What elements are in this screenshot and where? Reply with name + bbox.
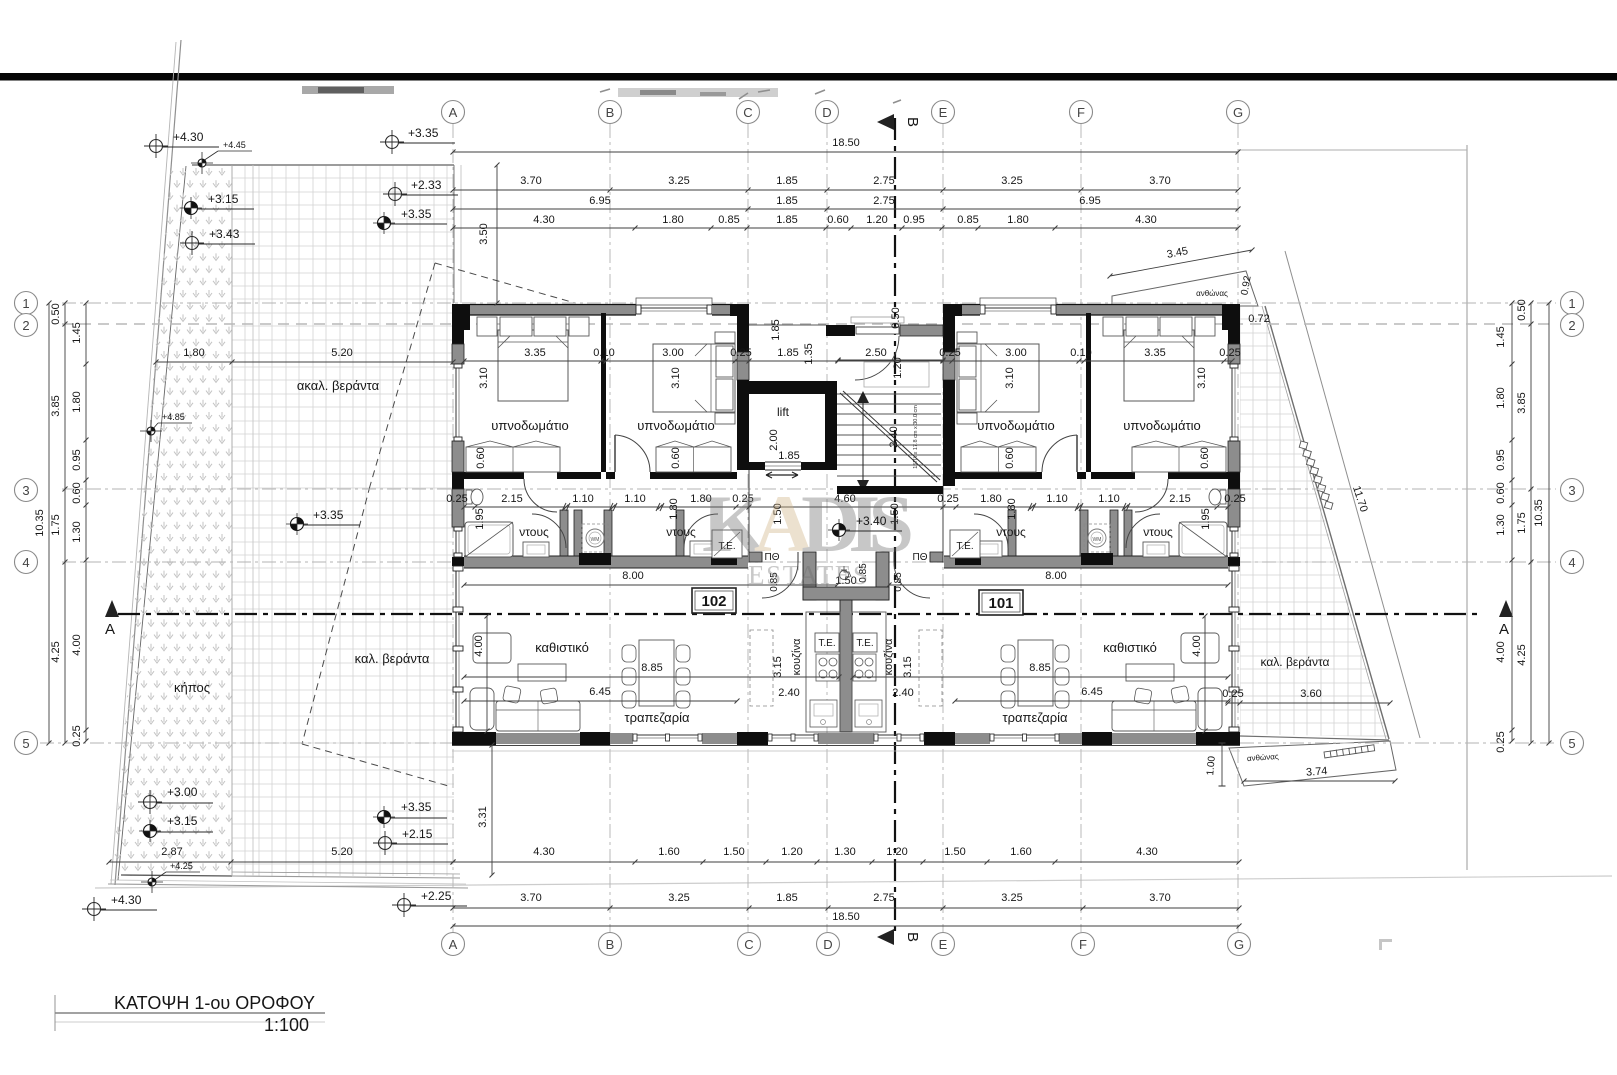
svg-text:B: B (904, 117, 921, 127)
svg-text:2.00: 2.00 (768, 429, 780, 450)
svg-text:0.60: 0.60 (475, 447, 487, 468)
svg-text:+3.35: +3.35 (408, 126, 439, 140)
svg-text:3.25: 3.25 (1001, 175, 1022, 187)
svg-text:Τ.Ε.: Τ.Ε. (818, 638, 835, 649)
svg-text:1: 1 (22, 296, 29, 311)
svg-text:υπνοδωμάτιο: υπνοδωμάτιο (637, 418, 714, 433)
svg-text:1.80: 1.80 (71, 391, 83, 412)
svg-text:0.85: 0.85 (957, 214, 978, 226)
svg-text:C: C (744, 937, 753, 952)
svg-text:0.25: 0.25 (446, 493, 467, 505)
svg-text:0.60: 0.60 (670, 447, 682, 468)
svg-text:0.72: 0.72 (1248, 313, 1269, 325)
svg-text:18.50: 18.50 (832, 911, 860, 923)
svg-text:καλ. βεράντα: καλ. βεράντα (1261, 655, 1330, 669)
svg-text:5.20: 5.20 (331, 347, 352, 359)
svg-text:υπνοδωμάτιο: υπνοδωμάτιο (1123, 418, 1200, 433)
svg-text:1.20: 1.20 (781, 846, 802, 858)
svg-text:A: A (449, 105, 458, 120)
svg-text:υπνοδωμάτιο: υπνοδωμάτιο (491, 418, 568, 433)
svg-text:0.25: 0.25 (1224, 493, 1245, 505)
svg-text:6.95: 6.95 (589, 195, 610, 207)
svg-text:τραπεζαρία: τραπεζαρία (625, 710, 690, 725)
svg-text:ντους: ντους (519, 525, 549, 539)
svg-text:1.30: 1.30 (71, 521, 83, 542)
svg-text:A: A (449, 937, 458, 952)
svg-text:ακαλ. βεράντα: ακαλ. βεράντα (297, 378, 380, 393)
svg-text:0.25: 0.25 (1219, 347, 1240, 359)
svg-text:3: 3 (22, 483, 29, 498)
svg-text:1.80: 1.80 (668, 498, 680, 519)
svg-text:2.75: 2.75 (873, 175, 894, 187)
svg-text:1.45: 1.45 (71, 322, 83, 343)
svg-text:1.50: 1.50 (944, 846, 965, 858)
svg-text:1.85: 1.85 (778, 450, 799, 462)
svg-text:D: D (823, 937, 832, 952)
svg-text:3.25: 3.25 (668, 892, 689, 904)
svg-text:0.25: 0.25 (71, 725, 83, 746)
svg-text:1.75: 1.75 (50, 514, 62, 535)
svg-text:3.10: 3.10 (670, 367, 682, 388)
svg-text:ανθώνας: ανθώνας (1196, 289, 1228, 298)
svg-text:1.85: 1.85 (776, 175, 797, 187)
svg-text:101: 101 (988, 595, 1013, 612)
svg-text:1.20: 1.20 (892, 357, 904, 378)
svg-text:1.10: 1.10 (572, 493, 593, 505)
svg-text:4.00: 4.00 (1495, 641, 1507, 662)
svg-text:8.85: 8.85 (641, 662, 662, 674)
svg-text:1.75: 1.75 (1516, 512, 1528, 533)
svg-text:Τ.Ε.: Τ.Ε. (956, 541, 973, 552)
svg-text:3.70: 3.70 (1149, 175, 1170, 187)
svg-text:ΠΘ: ΠΘ (913, 552, 928, 563)
svg-text:3.00: 3.00 (1005, 347, 1026, 359)
svg-text:+3.00: +3.00 (167, 785, 198, 799)
svg-text:G: G (1233, 105, 1243, 120)
svg-text:υπνοδωμάτιο: υπνοδωμάτιο (977, 418, 1054, 433)
svg-text:B: B (904, 932, 921, 942)
svg-text:κήπος: κήπος (174, 680, 210, 695)
svg-text:3.35: 3.35 (524, 347, 545, 359)
svg-text:0.60: 0.60 (71, 482, 83, 503)
svg-text:1.80: 1.80 (1006, 498, 1018, 519)
svg-text:10.35: 10.35 (34, 509, 46, 537)
svg-text:3.85: 3.85 (50, 395, 62, 416)
svg-text:2.40: 2.40 (778, 687, 799, 699)
svg-text:+3.15: +3.15 (208, 192, 239, 206)
svg-text:1.10: 1.10 (1098, 493, 1119, 505)
svg-text:+3.35: +3.35 (313, 508, 344, 522)
svg-text:0.85: 0.85 (718, 214, 739, 226)
svg-text:B: B (606, 105, 615, 120)
svg-text:ESTATES: ESTATES (748, 560, 868, 590)
svg-text:3.70: 3.70 (520, 175, 541, 187)
svg-text:2: 2 (22, 318, 29, 333)
svg-text:WM: WM (1093, 537, 1102, 543)
svg-text:κουζίνα: κουζίνα (791, 638, 803, 675)
svg-text:3.10: 3.10 (478, 367, 490, 388)
svg-text:E: E (939, 105, 948, 120)
svg-text:0.25: 0.25 (730, 347, 751, 359)
svg-text:ΚΑΤΟΨΗ 1-ου ΟΡΟΦΟΥ: ΚΑΤΟΨΗ 1-ου ΟΡΟΦΟΥ (114, 993, 315, 1013)
svg-text:+4.25: +4.25 (170, 861, 193, 871)
svg-text:3: 3 (1568, 483, 1575, 498)
svg-text:lift: lift (777, 405, 790, 419)
svg-text:3.15: 3.15 (772, 656, 784, 677)
svg-text:0.60: 0.60 (827, 214, 848, 226)
svg-text:4.30: 4.30 (533, 214, 554, 226)
svg-text:+3.15: +3.15 (167, 814, 198, 828)
svg-text:4: 4 (22, 555, 29, 570)
svg-text:ντους: ντους (666, 525, 696, 539)
svg-text:+3.35: +3.35 (401, 800, 432, 814)
svg-text:1.35: 1.35 (803, 343, 815, 364)
svg-text:0.50: 0.50 (890, 307, 902, 328)
svg-text:+3.43: +3.43 (209, 227, 240, 241)
svg-text:3.25: 3.25 (1001, 892, 1022, 904)
svg-text:1.60: 1.60 (658, 846, 679, 858)
svg-text:+3.35: +3.35 (401, 207, 432, 221)
svg-text:8.00: 8.00 (1045, 570, 1066, 582)
svg-text:2.15: 2.15 (1169, 493, 1190, 505)
svg-text:+4.30: +4.30 (111, 893, 142, 907)
svg-text:1.60: 1.60 (1010, 846, 1031, 858)
svg-text:3.70: 3.70 (1149, 892, 1170, 904)
svg-text:τραπεζαρία: τραπεζαρία (1003, 710, 1068, 725)
svg-text:3.85: 3.85 (1516, 392, 1528, 413)
svg-text:F: F (1079, 937, 1087, 952)
svg-text:18.50: 18.50 (832, 137, 860, 149)
svg-text:5: 5 (22, 736, 29, 751)
svg-text:8.00: 8.00 (622, 570, 643, 582)
svg-text:+4.85: +4.85 (162, 412, 185, 422)
svg-text:3.35: 3.35 (1144, 347, 1165, 359)
svg-text:E: E (939, 937, 948, 952)
svg-text:8.85: 8.85 (1029, 662, 1050, 674)
svg-text:+2.33: +2.33 (411, 178, 442, 192)
svg-text:καλ. βεράντα: καλ. βεράντα (355, 651, 430, 666)
svg-text:3.25: 3.25 (668, 175, 689, 187)
svg-text:2: 2 (1568, 318, 1575, 333)
svg-text:0.50: 0.50 (50, 303, 62, 324)
svg-text:6.45: 6.45 (1081, 686, 1102, 698)
svg-text:0.95: 0.95 (1495, 449, 1507, 470)
svg-text:2.87: 2.87 (161, 846, 182, 858)
svg-text:15Πλ x 17.8 cm x 30.0 cm: 15Πλ x 17.8 cm x 30.0 cm (913, 405, 919, 469)
svg-text:4.25: 4.25 (1516, 644, 1528, 665)
svg-text:1.45: 1.45 (1495, 326, 1507, 347)
svg-text:+2.25: +2.25 (421, 889, 452, 903)
svg-text:κουζίνα: κουζίνα (883, 638, 895, 675)
svg-text:2.15: 2.15 (501, 493, 522, 505)
svg-text:B: B (606, 937, 615, 952)
svg-text:2.75: 2.75 (873, 892, 894, 904)
svg-text:1: 1 (1568, 296, 1575, 311)
svg-text:1.80: 1.80 (183, 347, 204, 359)
svg-text:0.25: 0.25 (1222, 688, 1243, 700)
svg-text:4.25: 4.25 (50, 641, 62, 662)
svg-text:1.10: 1.10 (1046, 493, 1067, 505)
svg-text:1.80: 1.80 (1495, 387, 1507, 408)
svg-text:10.35: 10.35 (1533, 499, 1545, 527)
svg-text:4.30: 4.30 (533, 846, 554, 858)
svg-text:1.85: 1.85 (776, 892, 797, 904)
svg-text:3.10: 3.10 (1196, 367, 1208, 388)
svg-text:3.10: 3.10 (1004, 367, 1016, 388)
svg-text:1:100: 1:100 (264, 1015, 309, 1035)
svg-text:1.85: 1.85 (776, 214, 797, 226)
svg-text:5.20: 5.20 (331, 846, 352, 858)
svg-text:3.70: 3.70 (520, 892, 541, 904)
svg-text:+2.15: +2.15 (402, 827, 433, 841)
svg-text:+4.45: +4.45 (223, 140, 246, 150)
svg-text:0.10: 0.10 (1070, 347, 1091, 359)
svg-text:3.31: 3.31 (477, 806, 489, 827)
svg-text:4.00: 4.00 (71, 634, 83, 655)
svg-text:0.25: 0.25 (939, 347, 960, 359)
svg-text:Τ.Ε.: Τ.Ε. (856, 638, 873, 649)
svg-text:2.75: 2.75 (873, 195, 894, 207)
svg-text:6.45: 6.45 (589, 686, 610, 698)
svg-text:4.00: 4.00 (1191, 635, 1203, 656)
svg-text:1:20: 1:20 (886, 846, 907, 858)
svg-text:F: F (1077, 105, 1085, 120)
svg-text:1.95: 1.95 (1200, 508, 1212, 529)
svg-text:0.50: 0.50 (1516, 299, 1528, 320)
svg-text:0.10: 0.10 (593, 347, 614, 359)
svg-text:3.60: 3.60 (1300, 688, 1321, 700)
svg-text:1.50: 1.50 (723, 846, 744, 858)
svg-text:5: 5 (1568, 736, 1575, 751)
svg-text:1.80: 1.80 (662, 214, 683, 226)
svg-text:4.00: 4.00 (473, 635, 485, 656)
svg-text:G: G (1234, 937, 1244, 952)
svg-text:1.30: 1.30 (834, 846, 855, 858)
svg-text:1.30: 1.30 (1495, 514, 1507, 535)
svg-text:+3.40: +3.40 (856, 514, 887, 528)
svg-text:1.85: 1.85 (770, 319, 782, 340)
svg-text:1.80: 1.80 (980, 493, 1001, 505)
svg-text:102: 102 (701, 593, 726, 610)
svg-text:0.25: 0.25 (1495, 731, 1507, 752)
svg-text:+4.30: +4.30 (173, 130, 204, 144)
svg-text:3.00: 3.00 (662, 347, 683, 359)
svg-text:D: D (822, 105, 831, 120)
svg-text:0.85: 0.85 (893, 572, 904, 592)
svg-text:1.85: 1.85 (776, 195, 797, 207)
svg-text:2.50: 2.50 (865, 347, 886, 359)
svg-text:1.85: 1.85 (777, 347, 798, 359)
svg-text:0.95: 0.95 (903, 214, 924, 226)
svg-text:C: C (743, 105, 752, 120)
svg-text:0.25: 0.25 (937, 493, 958, 505)
svg-text:0.60: 0.60 (1199, 447, 1211, 468)
svg-text:4.30: 4.30 (1136, 846, 1157, 858)
svg-text:1.10: 1.10 (624, 493, 645, 505)
svg-text:0.60: 0.60 (1004, 447, 1016, 468)
svg-text:2.40: 2.40 (888, 426, 900, 447)
svg-text:2.40: 2.40 (892, 687, 913, 699)
svg-text:3.15: 3.15 (902, 656, 914, 677)
svg-text:1.20: 1.20 (866, 214, 887, 226)
svg-text:4.30: 4.30 (1135, 214, 1156, 226)
svg-text:0.60: 0.60 (1495, 482, 1507, 503)
svg-text:0.95: 0.95 (71, 449, 83, 470)
svg-text:καθιστικό: καθιστικό (535, 640, 589, 655)
svg-text:1.00: 1.00 (1205, 755, 1218, 776)
svg-text:3.74: 3.74 (1306, 765, 1328, 778)
svg-text:A: A (1499, 621, 1509, 638)
svg-text:1.95: 1.95 (474, 508, 486, 529)
svg-text:ντους: ντους (996, 525, 1026, 539)
svg-text:6.95: 6.95 (1079, 195, 1100, 207)
svg-text:ντους: ντους (1143, 525, 1173, 539)
svg-text:A: A (105, 621, 115, 638)
svg-text:καθιστικό: καθιστικό (1103, 640, 1157, 655)
svg-text:WM: WM (591, 537, 600, 543)
svg-text:3.50: 3.50 (478, 223, 490, 244)
svg-text:4: 4 (1568, 555, 1575, 570)
svg-text:1.80: 1.80 (1007, 214, 1028, 226)
